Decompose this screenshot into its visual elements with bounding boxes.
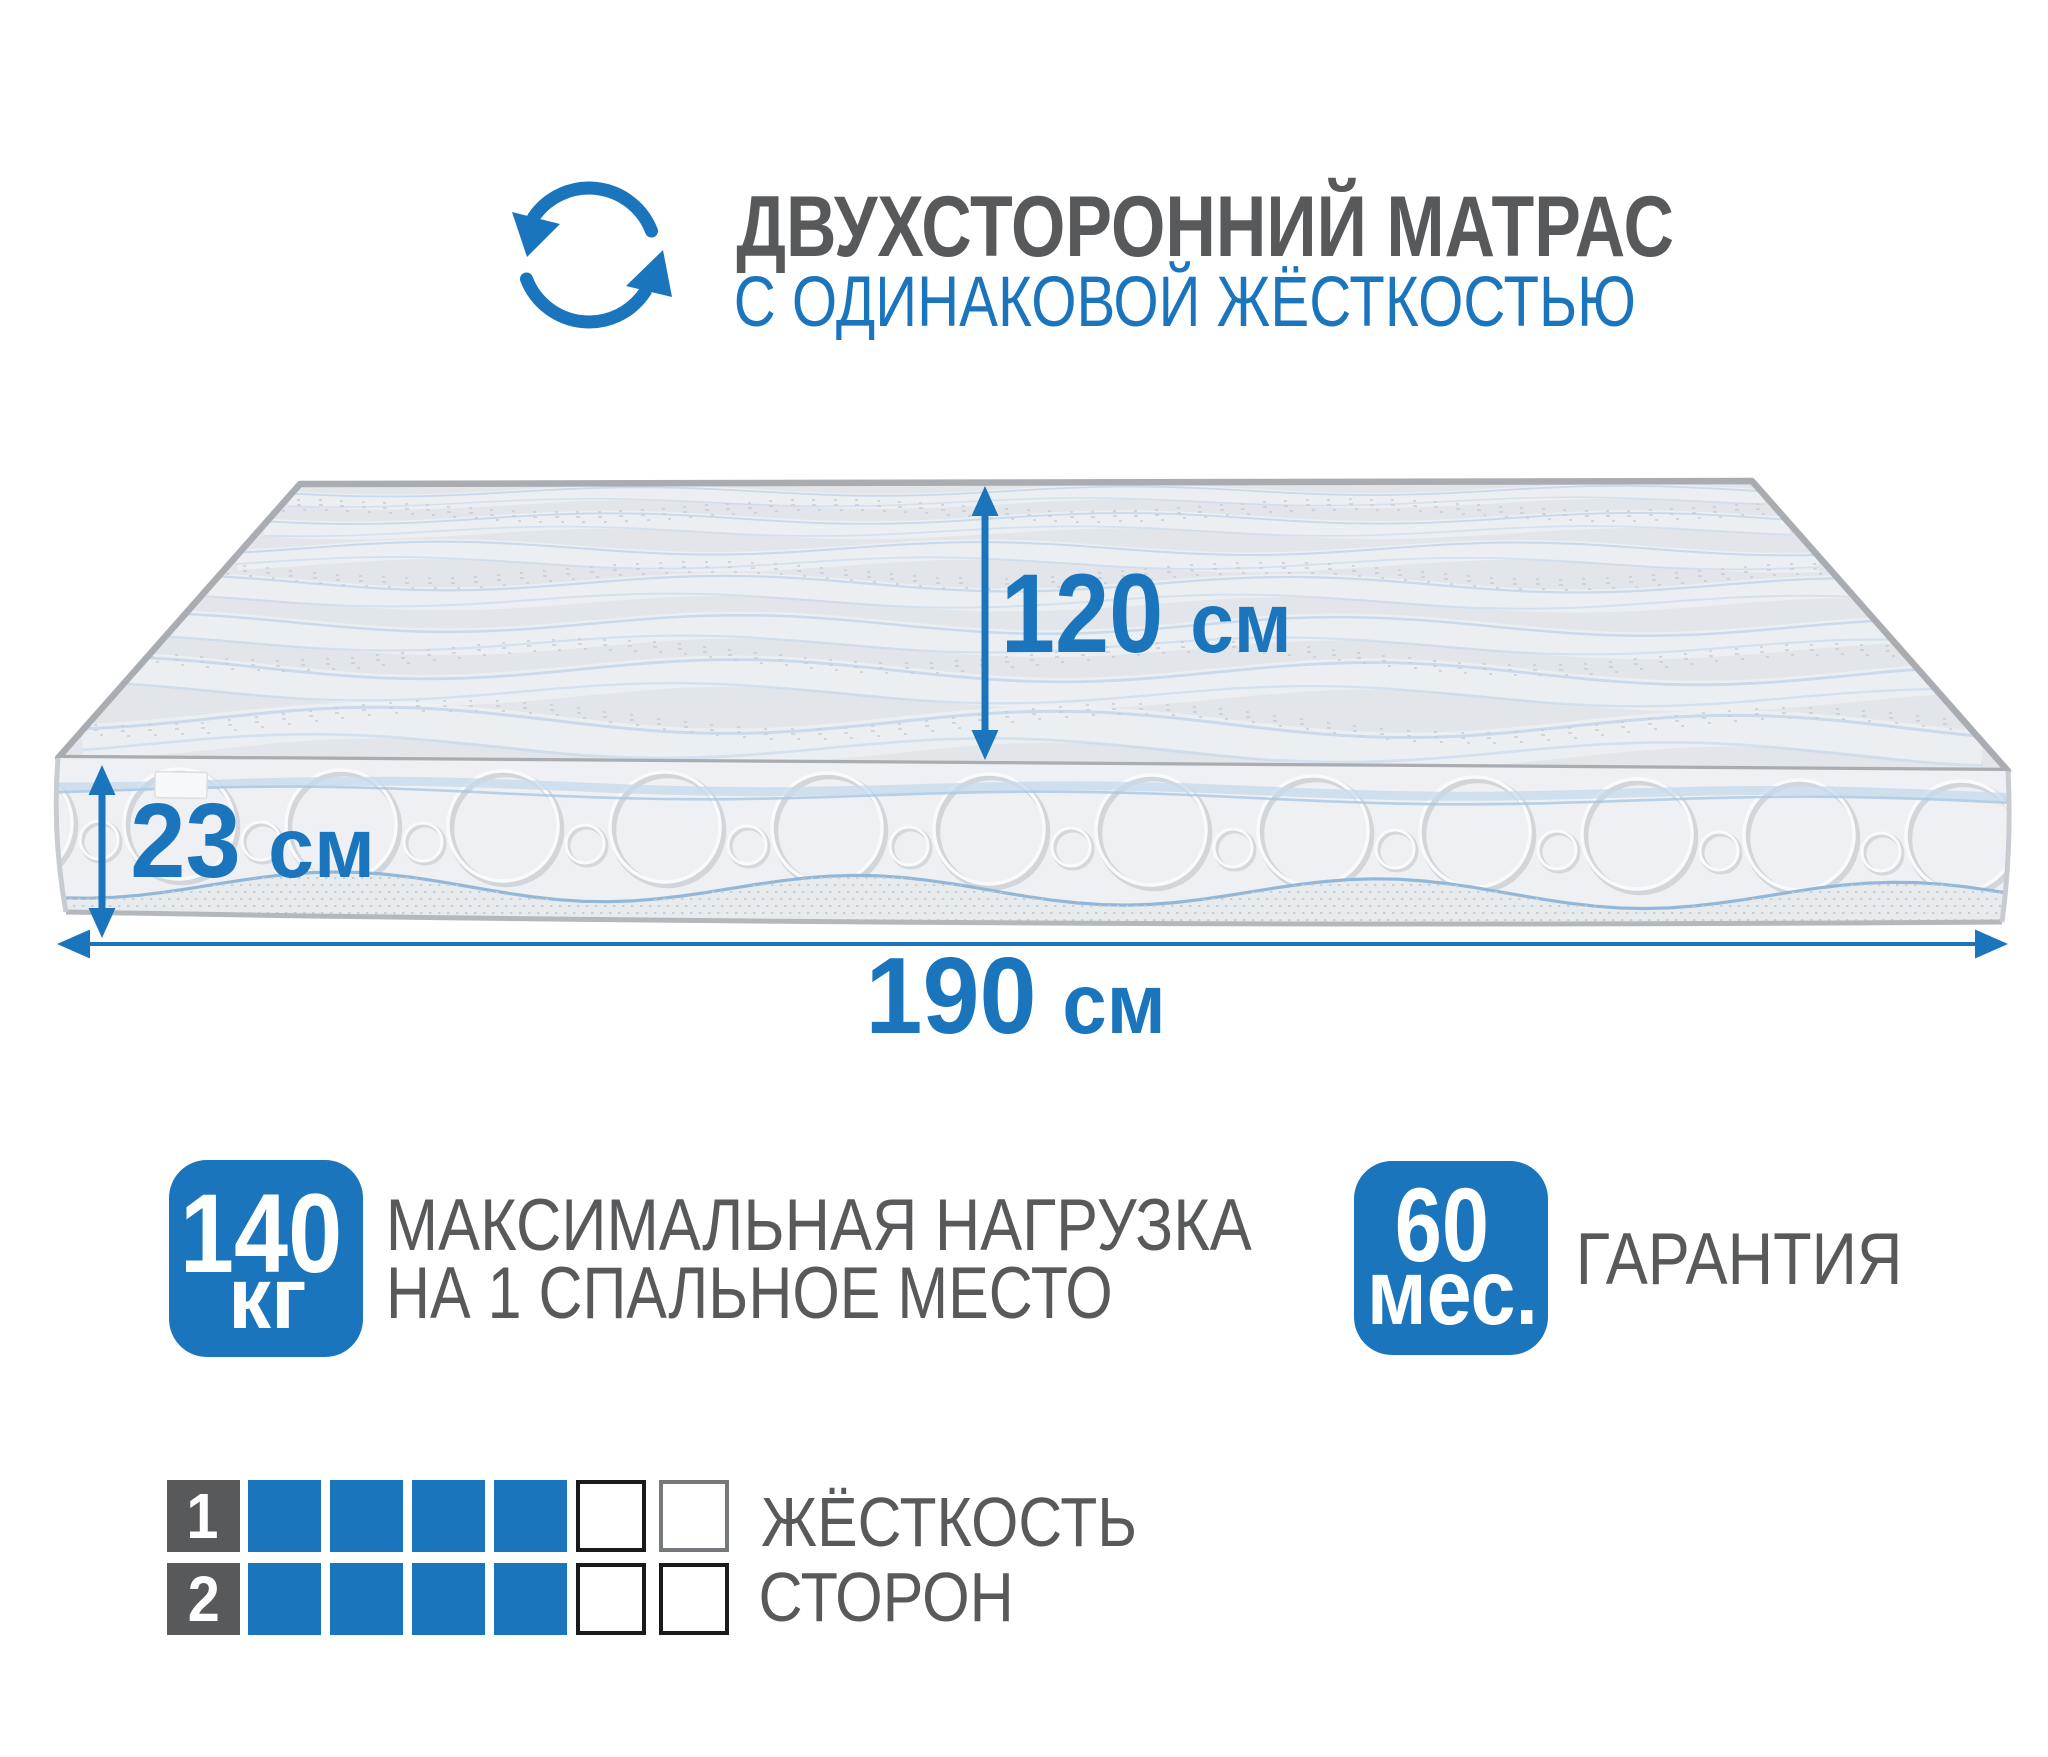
svg-text:120: 120 xyxy=(1001,552,1163,677)
svg-text:23: 23 xyxy=(130,781,240,900)
svg-text:190: 190 xyxy=(865,935,1036,1057)
svg-text:ЖЁСТКОСТЬ: ЖЁСТКОСТЬ xyxy=(761,1483,1137,1561)
svg-text:С ОДИНАКОВОЙ ЖЁСТКОСТЬЮ: С ОДИНАКОВОЙ ЖЁСТКОСТЬЮ xyxy=(734,261,1636,341)
svg-text:ДВУХСТОРОННИЙ МАТРАС: ДВУХСТОРОННИЙ МАТРАС xyxy=(736,178,1674,275)
svg-text:СТОРОН: СТОРОН xyxy=(759,1558,1014,1636)
svg-text:см: см xyxy=(268,800,375,895)
svg-text:см: см xyxy=(1062,957,1166,1052)
svg-text:кг: кг xyxy=(228,1250,307,1347)
svg-text:ГАРАНТИЯ: ГАРАНТИЯ xyxy=(1576,1219,1903,1300)
svg-text:см: см xyxy=(1190,576,1291,671)
svg-text:2: 2 xyxy=(188,1563,220,1634)
svg-text:1: 1 xyxy=(186,1480,218,1551)
svg-text:мес.: мес. xyxy=(1367,1241,1538,1345)
svg-text:НА 1 СПАЛЬНОЕ МЕСТО: НА 1 СПАЛЬНОЕ МЕСТО xyxy=(386,1253,1113,1334)
